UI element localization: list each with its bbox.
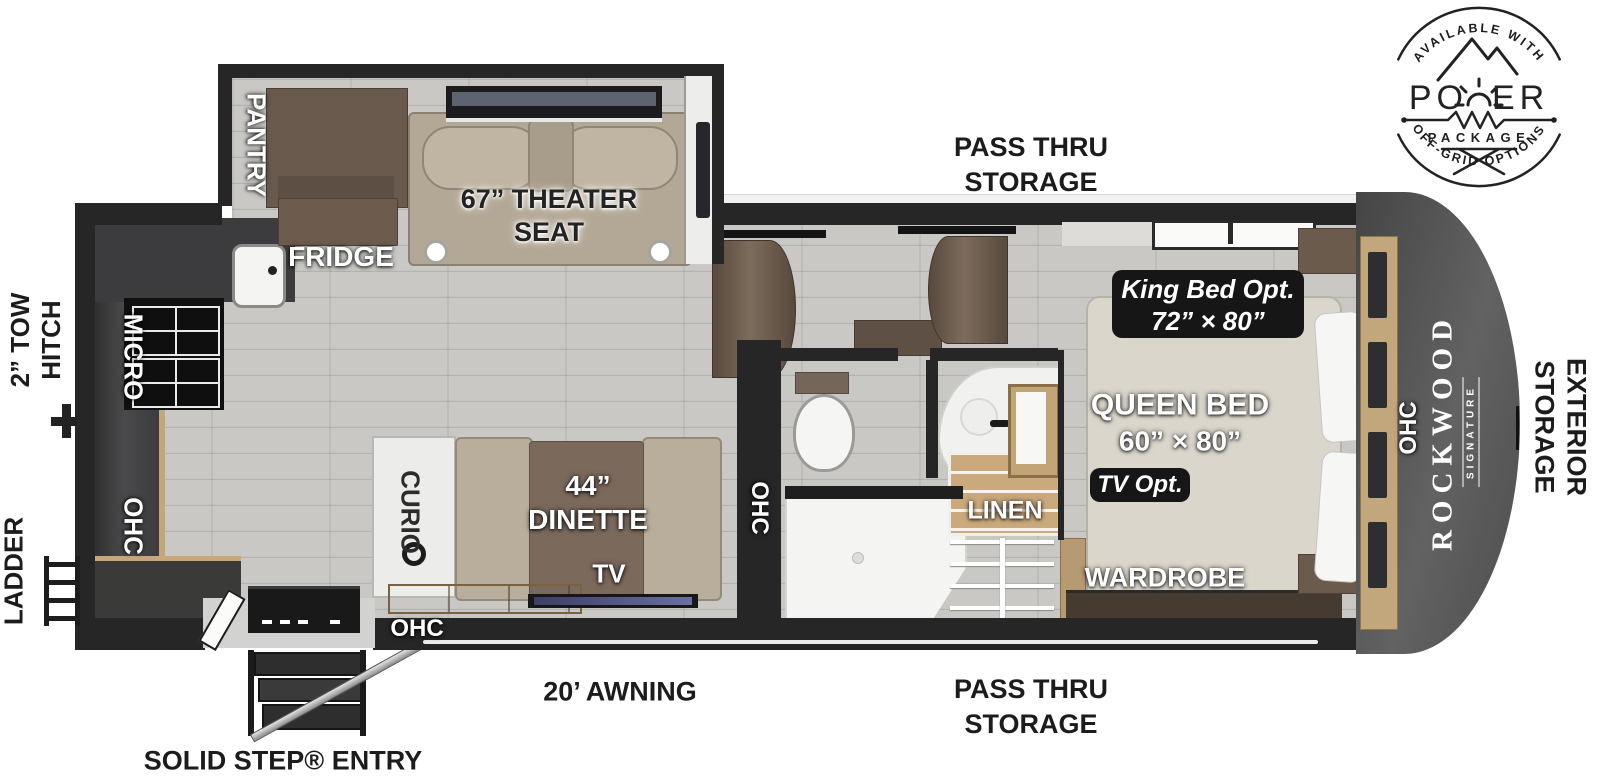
line-dot-left	[1401, 117, 1407, 123]
front-window-slot	[1368, 522, 1387, 588]
wall-bottom-left	[75, 618, 205, 650]
rear-ladder	[44, 556, 80, 626]
shower-drain	[852, 552, 864, 564]
exterior-storage-label: EXTERIOR STORAGE	[1528, 358, 1593, 496]
awning-rail-line	[423, 640, 1318, 644]
step-vent	[298, 620, 308, 624]
solid-step-well	[248, 586, 360, 633]
vanity-faucet	[990, 420, 1010, 427]
step-vent	[280, 620, 290, 624]
power-package-badge: AVAILABLE WITH OFF-GRID OPTIONS PO ER PA…	[1384, 2, 1574, 192]
slide-side-window	[696, 122, 710, 218]
sliding-door-2	[928, 236, 1008, 344]
wall-top-left	[75, 203, 222, 225]
queen-bed-label: QUEEN BED 60” × 80”	[1091, 388, 1269, 459]
cupholder-right	[648, 240, 672, 264]
fridge-label: FRIDGE	[288, 241, 394, 273]
rockwood-series-logo: SIGNATURE	[1463, 377, 1480, 487]
theater-window-sill	[446, 118, 662, 122]
fridge-box	[278, 198, 398, 246]
entry-step-rail-right	[360, 650, 366, 736]
badge-available-with: AVAILABLE WITH	[1410, 21, 1547, 65]
bedroom-wall-divider	[1058, 350, 1064, 540]
front-window-slot	[1368, 432, 1387, 498]
exterior-storage-door-mark	[1516, 406, 1519, 450]
step-vent	[330, 620, 340, 624]
kitchen-faucet	[268, 266, 277, 275]
tow-hitch-post	[62, 404, 71, 438]
ladder-rung	[48, 616, 76, 621]
theater-seat-back-left	[422, 126, 540, 190]
tv-screen	[534, 597, 692, 605]
kitchen-ohc-label: OHC	[118, 497, 149, 555]
curio-label: CURIO	[395, 470, 426, 554]
bathroom-ohc-label: OHC	[745, 481, 773, 534]
slide-wall-top	[218, 64, 724, 78]
theater-seat-label: 67” THEATER SEAT	[461, 183, 638, 249]
front-window-slot	[1368, 252, 1387, 318]
pass-thru-storage-bottom-label: PASS THRU STORAGE	[954, 672, 1108, 742]
sliding-door-track-2	[898, 226, 1016, 234]
floorplan-canvas: MICRO OHC PANTRY FRIDGE 67” THEATER SEAT…	[0, 0, 1600, 776]
slide-wall-left	[218, 64, 232, 206]
awning-label: 20’ AWNING	[543, 677, 697, 708]
bedroom-window	[1152, 220, 1316, 250]
theater-seat-back-right	[560, 126, 678, 190]
bathroom-wall-top-left	[737, 348, 898, 361]
tv-label: TV	[592, 559, 625, 590]
vanity-sink-bowl	[960, 398, 998, 436]
theater-window-glass	[452, 92, 656, 106]
solid-step-entry-label: SOLID STEP® ENTRY	[144, 746, 422, 776]
entry-step-tread	[254, 652, 362, 676]
badge-package: PACKAGE	[1428, 130, 1531, 145]
front-window-slot	[1368, 342, 1387, 408]
bathroom-partition	[926, 360, 938, 478]
micro-label: MICRO	[118, 314, 149, 401]
bedroom-ohc-label: OHC	[1395, 401, 1423, 454]
wall-bottom-right	[373, 618, 1375, 650]
pantry-label: PANTRY	[241, 93, 272, 197]
kitchen-sink	[232, 244, 286, 308]
badge-power-right: ER	[1492, 79, 1549, 117]
king-bed-option-badge: King Bed Opt. 72” × 80”	[1112, 270, 1304, 338]
living-ohc-lower-label: OHC	[390, 615, 443, 643]
bathroom-wall-top-right	[930, 348, 1058, 361]
ladder-rung	[48, 562, 76, 567]
ladder-rung	[48, 580, 76, 585]
tow-hitch-label: 2” TOW HITCH	[5, 293, 67, 388]
medicine-cabinet-mirror	[1016, 392, 1046, 464]
linen-label: LINEN	[968, 497, 1043, 526]
shower-door-track	[785, 486, 963, 499]
bedroom-passthru-strip	[1062, 222, 1152, 246]
badge-power-left: PO	[1409, 79, 1468, 117]
dinette-bench-right	[642, 437, 722, 601]
mountains-icon	[1438, 39, 1517, 80]
step-vent	[262, 620, 272, 624]
dinette-label: 44” DINETTE	[528, 469, 648, 537]
svg-text:AVAILABLE WITH: AVAILABLE WITH	[1410, 21, 1547, 65]
rockwood-brand-logo: ROCKWOOD	[1427, 313, 1460, 551]
line-dot-right	[1551, 117, 1557, 123]
tv-option-badge: TV Opt.	[1090, 468, 1190, 502]
theater-seat-console	[528, 118, 574, 192]
toilet	[793, 394, 855, 472]
toilet-tank	[795, 372, 849, 394]
dinette-bench-left	[455, 437, 533, 601]
pass-thru-storage-top-label: PASS THRU STORAGE	[954, 130, 1108, 200]
ladder-rung	[48, 598, 76, 603]
slide-wall-right-outer	[712, 64, 724, 264]
ladder-label: LADDER	[0, 517, 30, 625]
wardrobe-label: WARDROBE	[1085, 563, 1246, 594]
bedroom-window-mullion	[1228, 220, 1233, 244]
entry-step-rail-left	[248, 650, 254, 736]
cupholder-left	[424, 240, 448, 264]
